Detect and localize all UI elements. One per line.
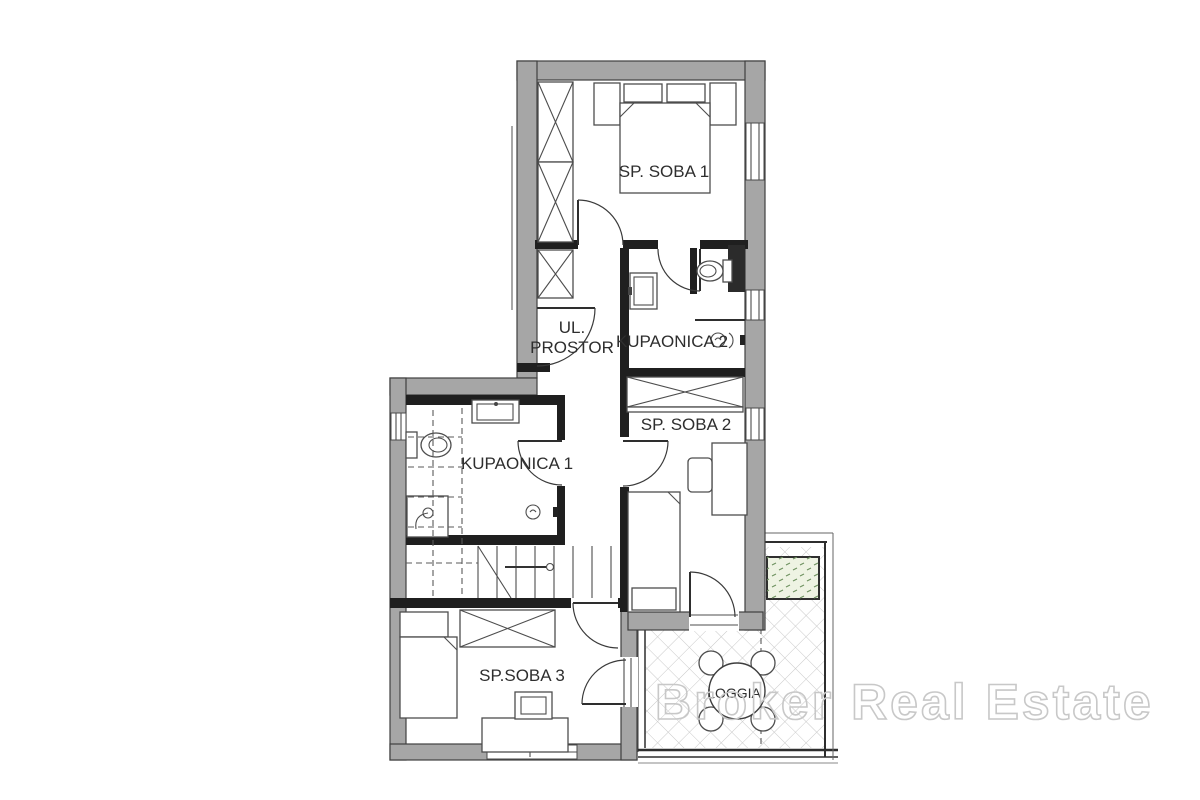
wardrobe-hallway: [538, 250, 573, 298]
chair-icon: [515, 692, 552, 719]
desk-icon: [482, 718, 568, 752]
window-bathroom2: [746, 290, 764, 320]
toilet-icon: [406, 432, 451, 458]
door-bedroom3: [573, 603, 618, 648]
door-bedroom1: [578, 200, 623, 245]
door-bedroom2: [623, 441, 668, 486]
window-bedroom2: [746, 408, 764, 440]
pillow-icon: [400, 612, 448, 637]
desk-icon: [712, 443, 747, 515]
window-bedroom1: [746, 123, 764, 180]
faucet-icon: [628, 287, 632, 295]
label-bathroom2: KUPAONICA 2: [616, 332, 728, 351]
pillow-icon: [667, 84, 705, 102]
nightstand-icon: [710, 83, 736, 125]
label-hallway-line2: PROSTOR: [530, 338, 614, 357]
faucet-icon: [494, 402, 498, 406]
chair-icon: [688, 458, 712, 492]
door-bedroom2-loggia: [689, 572, 739, 631]
label-bedroom3: SP.SOBA 3: [479, 666, 565, 685]
wardrobe-bedroom3: [460, 610, 555, 647]
bedroom2-furniture: [628, 443, 747, 612]
wall-fixture-icon: [553, 507, 558, 517]
toilet-icon: [697, 260, 732, 282]
floor-plan-page: SP. SOBA 1 UL. PROSTOR KUPAONICA 2 SP. S…: [0, 0, 1200, 800]
pillow-icon: [624, 84, 662, 102]
drain-symbol-icon: [526, 505, 540, 519]
label-hallway-line1: UL.: [559, 318, 585, 337]
door-hallway: [537, 308, 595, 366]
label-bedroom1: SP. SOBA 1: [619, 162, 709, 181]
label-bedroom2: SP. SOBA 2: [641, 415, 731, 434]
wardrobe-bedroom1: [538, 82, 573, 242]
watermark-text: Broker Real Estate: [655, 674, 1154, 730]
label-bathroom1: KUPAONICA 1: [461, 454, 573, 473]
shower-icon: [407, 496, 448, 537]
wardrobe-bedroom2: [627, 377, 743, 412]
nightstand-icon: [594, 83, 620, 125]
planter-box: [767, 557, 819, 599]
floor-plan-drawing: SP. SOBA 1 UL. PROSTOR KUPAONICA 2 SP. S…: [0, 0, 1200, 800]
wall-fixture-icon: [740, 335, 745, 345]
stair-direction-line: [478, 546, 511, 598]
single-bed-icon: [400, 637, 457, 718]
door-bedroom3-loggia: [582, 657, 638, 707]
window-bathroom1: [391, 413, 406, 440]
pillow-icon: [632, 588, 676, 610]
